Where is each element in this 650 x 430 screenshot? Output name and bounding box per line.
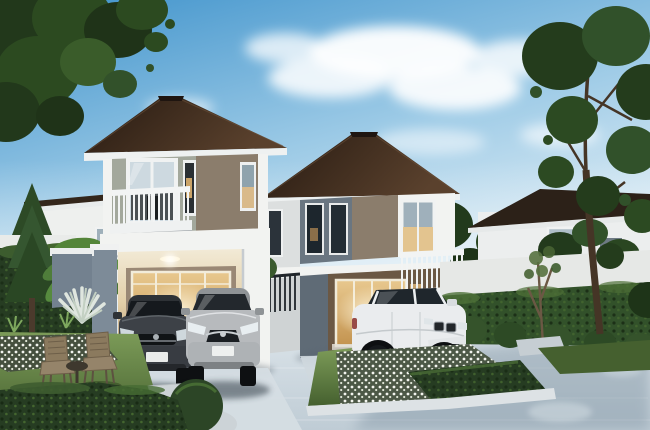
rendering-canvas [0, 0, 650, 430]
house-left-window-right [240, 162, 256, 211]
foreground-hedge [0, 379, 237, 430]
house-right-corner-column [300, 274, 328, 358]
housing-estate-rendering [0, 0, 650, 430]
